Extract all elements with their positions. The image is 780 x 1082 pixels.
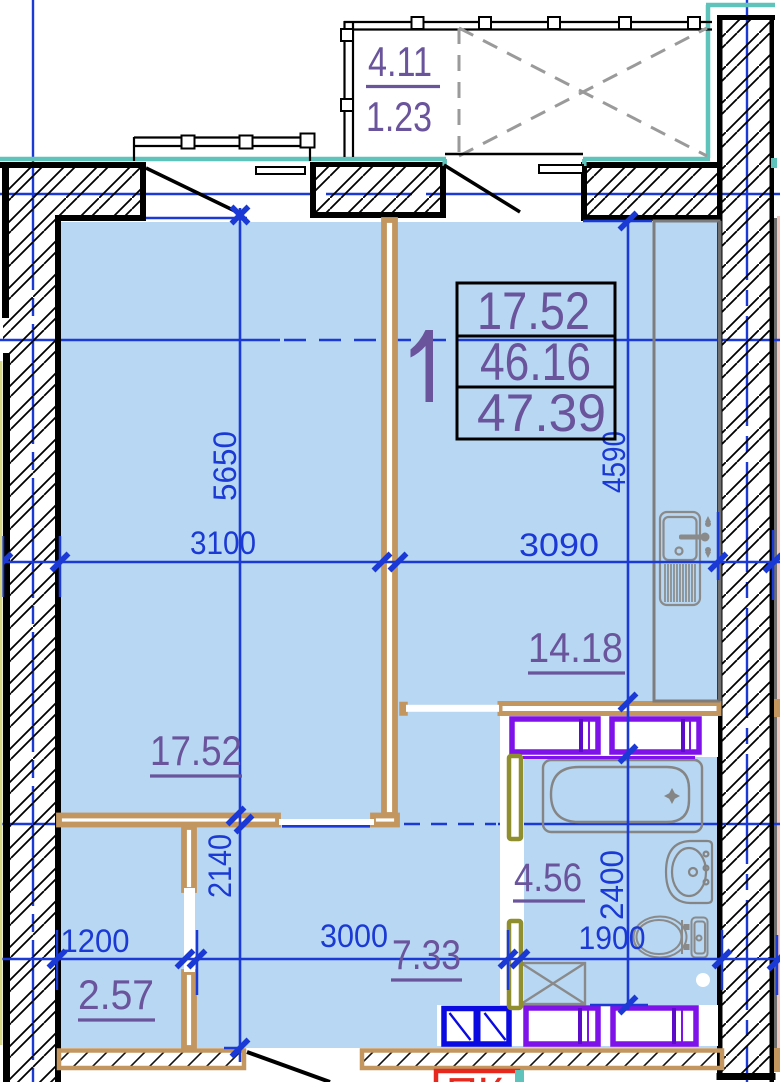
svg-text:ПК: ПК (446, 1069, 504, 1082)
svg-text:4.11: 4.11 (368, 38, 432, 85)
svg-text:3000: 3000 (320, 918, 388, 954)
svg-text:4.56: 4.56 (514, 856, 582, 900)
svg-text:2400: 2400 (594, 850, 630, 920)
svg-text:1900: 1900 (579, 920, 646, 956)
svg-text:14.18: 14.18 (528, 624, 623, 671)
svg-text:7.33: 7.33 (392, 931, 461, 978)
svg-text:1200: 1200 (61, 923, 130, 959)
svg-text:3100: 3100 (190, 525, 256, 561)
svg-text:2140: 2140 (202, 834, 238, 898)
svg-text:3090: 3090 (519, 527, 599, 563)
svg-text:47.39: 47.39 (477, 384, 606, 443)
svg-text:5650: 5650 (207, 431, 243, 501)
svg-text:1.23: 1.23 (366, 93, 432, 140)
svg-text:17.52: 17.52 (150, 727, 242, 774)
svg-text:2.57: 2.57 (78, 971, 154, 1018)
